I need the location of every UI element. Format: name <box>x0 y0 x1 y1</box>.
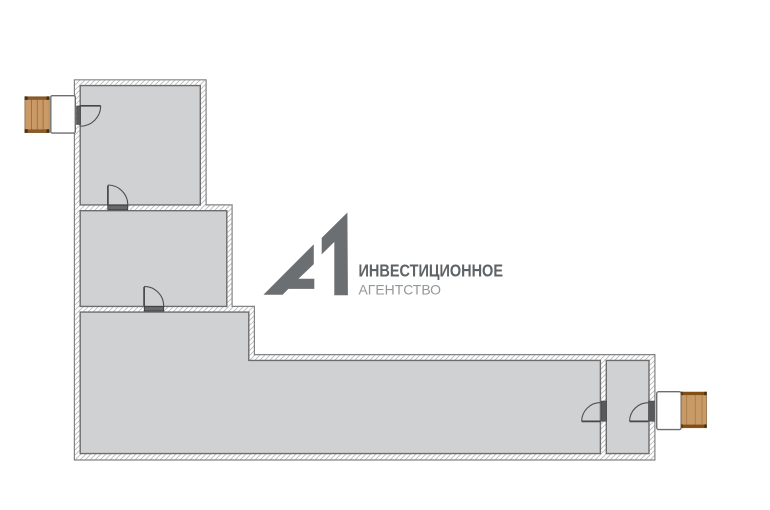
svg-text:АГЕНТСТВО: АГЕНТСТВО <box>359 283 442 298</box>
svg-text:ИНВЕСТИЦИОННОЕ: ИНВЕСТИЦИОННОЕ <box>359 260 504 280</box>
